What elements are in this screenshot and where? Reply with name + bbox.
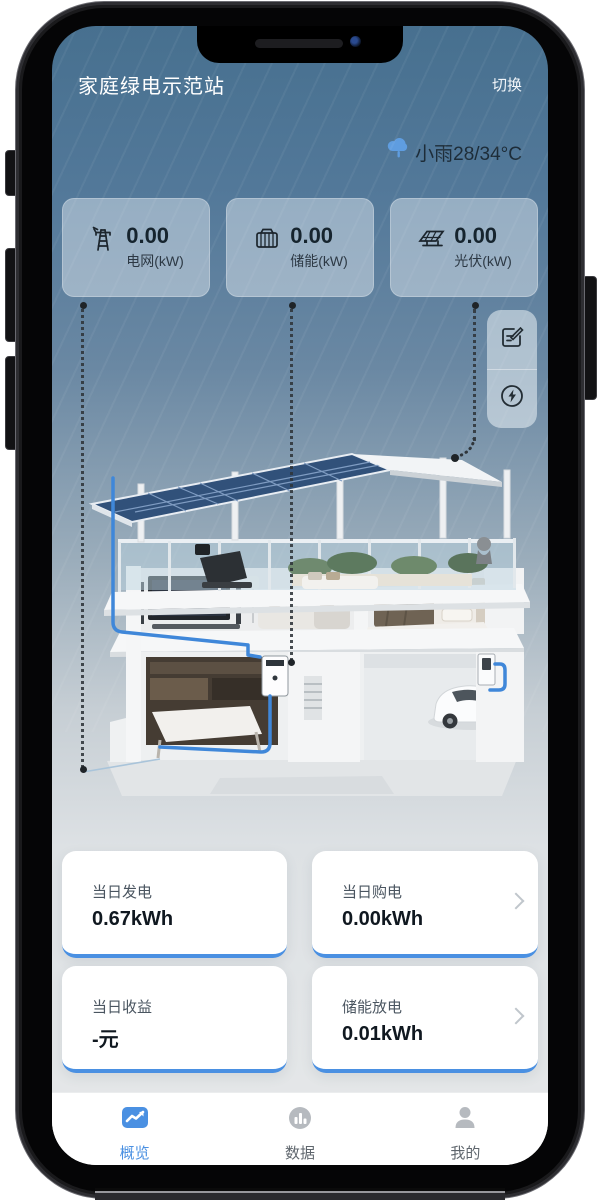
storage-connector-dot-top [289, 302, 296, 309]
storage-discharge-value: 0.01kWh [342, 1023, 423, 1046]
weather-status: 小雨28/34°C [386, 138, 522, 166]
pv-connector-dot-top [472, 302, 479, 309]
storage-connector-line [290, 309, 293, 661]
tab-mine[interactable]: 我的 [383, 1093, 548, 1165]
storage-power-value: 0.00 [290, 224, 348, 248]
daily-income-label: 当日收益 [92, 996, 152, 1017]
grid-power-card[interactable]: 0.00 电网(kW) [62, 198, 210, 297]
quick-actions-panel [487, 310, 537, 428]
storage-discharge-card[interactable]: 储能放电 0.01kWh [312, 966, 538, 1073]
grid-connector-line [81, 309, 84, 768]
storage-power-card[interactable]: 0.00 储能(kW) [226, 198, 374, 297]
daily-purchase-value: 0.00kWh [342, 908, 423, 931]
tab-overview-label: 概览 [120, 1142, 150, 1163]
pv-power-card[interactable]: 0.00 光伏(kW) [390, 198, 538, 297]
solar-panel-icon [416, 223, 446, 258]
storage-connector-dot-bottom [288, 659, 295, 666]
pv-connector-hook [448, 438, 480, 466]
profile-icon [452, 1105, 478, 1136]
energy-flash-icon [499, 383, 525, 414]
switch-station-button[interactable]: 切换 [492, 74, 522, 95]
page-title: 家庭绿电示范站 [78, 70, 225, 99]
phone-mockup: 家庭绿电示范站 切换 小雨28/34°C [0, 0, 600, 1200]
chevron-right-icon [508, 1008, 525, 1025]
edit-form-button[interactable] [487, 310, 537, 369]
daily-income-value: -元 [92, 1023, 152, 1052]
power-grid-tower-icon [88, 223, 118, 258]
daily-generation-value: 0.67kWh [92, 908, 173, 931]
energy-flow-button[interactable] [487, 369, 537, 429]
overview-chart-icon [120, 1105, 150, 1136]
phone-notch [197, 26, 403, 63]
weather-text: 小雨28/34°C [415, 139, 522, 166]
daily-purchase-card[interactable]: 当日购电 0.00kWh [312, 851, 538, 958]
tab-data[interactable]: 数据 [217, 1093, 382, 1165]
pv-power-label: 光伏(kW) [454, 251, 512, 271]
grid-power-label: 电网(kW) [126, 251, 184, 271]
earpiece-speaker [255, 39, 343, 48]
edit-form-icon [499, 324, 525, 355]
storage-power-label: 储能(kW) [290, 251, 348, 271]
daily-generation-card[interactable]: 当日发电 0.67kWh [62, 851, 287, 958]
daily-income-card[interactable]: 当日收益 -元 [62, 966, 287, 1073]
battery-storage-icon [252, 223, 282, 258]
realtime-power-cards: 0.00 电网(kW) 0.00 储能(kW) [62, 198, 538, 297]
rain-cloud-icon [386, 138, 410, 166]
storage-discharge-label: 储能放电 [342, 996, 423, 1017]
pv-power-value: 0.00 [454, 224, 512, 248]
app-screen: 家庭绿电示范站 切换 小雨28/34°C [52, 26, 548, 1165]
smart-home-illustration [52, 426, 548, 816]
tab-overview[interactable]: 概览 [52, 1093, 217, 1165]
daily-generation-label: 当日发电 [92, 881, 173, 902]
grid-connector-dot-bottom [80, 766, 87, 773]
tab-data-label: 数据 [285, 1142, 315, 1163]
grid-power-value: 0.00 [126, 224, 184, 248]
pv-connector-line [473, 309, 476, 441]
front-camera [350, 36, 361, 47]
grid-connector-dot-top [80, 302, 87, 309]
tab-mine-label: 我的 [450, 1142, 480, 1163]
chevron-right-icon [508, 893, 525, 910]
data-bars-icon [287, 1105, 313, 1136]
phone-bottom-edge [95, 1188, 505, 1200]
daily-purchase-label: 当日购电 [342, 881, 423, 902]
bottom-tab-bar: 概览 数据 [52, 1092, 548, 1165]
power-button [582, 276, 597, 400]
